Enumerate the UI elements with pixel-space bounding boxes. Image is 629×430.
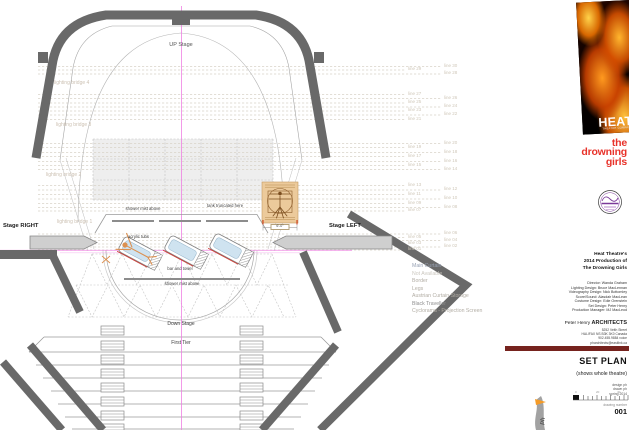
legend-item: Border bbox=[412, 278, 482, 286]
fly-line-label: line 13 bbox=[408, 183, 421, 188]
drawing-number: 001 bbox=[614, 407, 627, 416]
set-plan-sheet: UP Stage Stage RIGHT Stage LEFT Down Sta… bbox=[0, 0, 629, 430]
bar-and-towel-label: bar and towel bbox=[167, 267, 192, 271]
production-heading-line: The Drowning Girls bbox=[583, 266, 627, 273]
fly-line-label: line 08 bbox=[444, 205, 457, 210]
curtain-legend: Main CurtainNot AvailableBorderLegsAustr… bbox=[412, 263, 482, 316]
theatre-company-seal bbox=[594, 188, 626, 218]
fly-line-label: line 22 bbox=[444, 112, 457, 117]
fly-line-label: line 12 bbox=[444, 187, 457, 192]
fly-line-label: line 28 bbox=[444, 71, 457, 76]
legend-item: Austrian Curtain Storage bbox=[412, 293, 482, 301]
architect-address: 5252 Veith StreetHALIFAX NS B3K 3K0 Cana… bbox=[582, 328, 627, 345]
svg-text:ph: ph bbox=[539, 417, 547, 426]
legend-item: Not Available bbox=[412, 271, 482, 279]
address-line: pharchitects@eastlink.ca bbox=[582, 341, 627, 345]
fly-line-label: line 15 bbox=[408, 163, 421, 168]
heat-brand-subtitle: THEATRE COMPANY bbox=[599, 126, 629, 131]
shower-mist-top-label: shower mist above bbox=[126, 207, 161, 211]
fly-line-label: line 17 bbox=[408, 154, 421, 159]
up-stage-label: UP Stage bbox=[169, 43, 192, 49]
production-heading-line: Heat Theatre's bbox=[583, 252, 627, 259]
tank-truncated-label: tank truncated here bbox=[207, 204, 243, 208]
stage-right-label: Stage RIGHT bbox=[3, 224, 38, 230]
fly-line-label: line 03 bbox=[408, 241, 421, 246]
credit-line: Costume Design: Edie Orenstein bbox=[569, 299, 627, 304]
architect-firm: ARCHITECTS bbox=[592, 320, 627, 326]
fly-line-label: line 01 bbox=[408, 247, 421, 252]
sheet-title: SET PLAN bbox=[579, 356, 627, 366]
fly-line-label: line 19 bbox=[408, 145, 421, 150]
show-title-line: girls bbox=[581, 158, 627, 167]
poster-brand-block: HEAT THEATRE COMPANY bbox=[598, 116, 629, 131]
legend-item: Cyclorama - Projection Screen bbox=[412, 308, 482, 316]
lighting-bridge-label: lighting bridge 3 bbox=[56, 123, 91, 128]
legend-item: Black Traveller bbox=[412, 301, 482, 309]
credit-line: Production Manager: MJ MacLeod bbox=[569, 308, 627, 313]
production-heading: Heat Theatre's2014 Production ofThe Drow… bbox=[583, 252, 627, 272]
credit-line: Videography Design: Nick Bottomley bbox=[569, 290, 627, 295]
fly-line-label: line 10 bbox=[444, 196, 457, 201]
lighting-bridge-label: lighting bridge 2 bbox=[46, 173, 81, 178]
credits-list: Director: Wanda GrahamLighting Design: B… bbox=[569, 281, 627, 313]
stage-left-label: Stage LEFT bbox=[329, 224, 361, 230]
fly-line-label: line 05 bbox=[408, 235, 421, 240]
production-heading-line: 2014 Production of bbox=[583, 259, 627, 266]
fly-line-label: line 23 bbox=[408, 108, 421, 113]
fly-line-label: line 20 bbox=[444, 141, 457, 146]
legend-item: Main Curtain bbox=[412, 263, 482, 271]
fly-line-label: line 09 bbox=[408, 201, 421, 206]
acrylic-tubs-label: acrylic tubs bbox=[128, 235, 149, 239]
fly-line-label: line 04 bbox=[444, 238, 457, 243]
fly-line-label: line 30 bbox=[444, 64, 457, 69]
lighting-bridge-label: lighting bridge 1 bbox=[57, 220, 92, 225]
fly-line-label: line 14 bbox=[444, 167, 457, 172]
tub-dimension-label: 6'-0" bbox=[271, 224, 290, 231]
fly-line-label: line 07 bbox=[408, 208, 421, 213]
lighting-bridge-label: lighting bridge 4 bbox=[54, 81, 89, 86]
fly-line-label: line 24 bbox=[444, 104, 457, 109]
fly-line-label: line 18 bbox=[444, 150, 457, 155]
fly-line-label: line 27 bbox=[408, 92, 421, 97]
legend-item: Legs bbox=[412, 286, 482, 294]
architect-name-line: Peter Henry ARCHITECTS bbox=[565, 320, 627, 326]
fly-line-label: line 29 bbox=[408, 67, 421, 72]
fly-line-label: line 26 bbox=[444, 96, 457, 101]
first-tier-label: First Tier bbox=[171, 341, 190, 346]
show-poster-flames: HEAT THEATRE COMPANY bbox=[576, 0, 629, 135]
fly-line-label: line 02 bbox=[444, 244, 457, 249]
fly-line-label: line 11 bbox=[408, 192, 421, 197]
down-stage-label: Down Stage bbox=[167, 322, 194, 327]
fly-line-label: line 16 bbox=[444, 159, 457, 164]
architect-logo: ph bbox=[522, 392, 558, 430]
architect-name: Peter Henry bbox=[565, 321, 591, 326]
title-block-divider-bar bbox=[505, 346, 629, 351]
fly-line-label: line 06 bbox=[444, 231, 457, 236]
shower-mist-bottom-label: shower mist above bbox=[165, 282, 200, 286]
sheet-subtitle: (shows whole theatre) bbox=[576, 371, 627, 377]
fly-line-label: line 21 bbox=[408, 117, 421, 122]
fly-line-label: line 25 bbox=[408, 100, 421, 105]
plan-label-overlay: UP Stage Stage RIGHT Stage LEFT Down Sta… bbox=[0, 0, 629, 430]
show-title: thedrowninggirls bbox=[581, 139, 627, 167]
